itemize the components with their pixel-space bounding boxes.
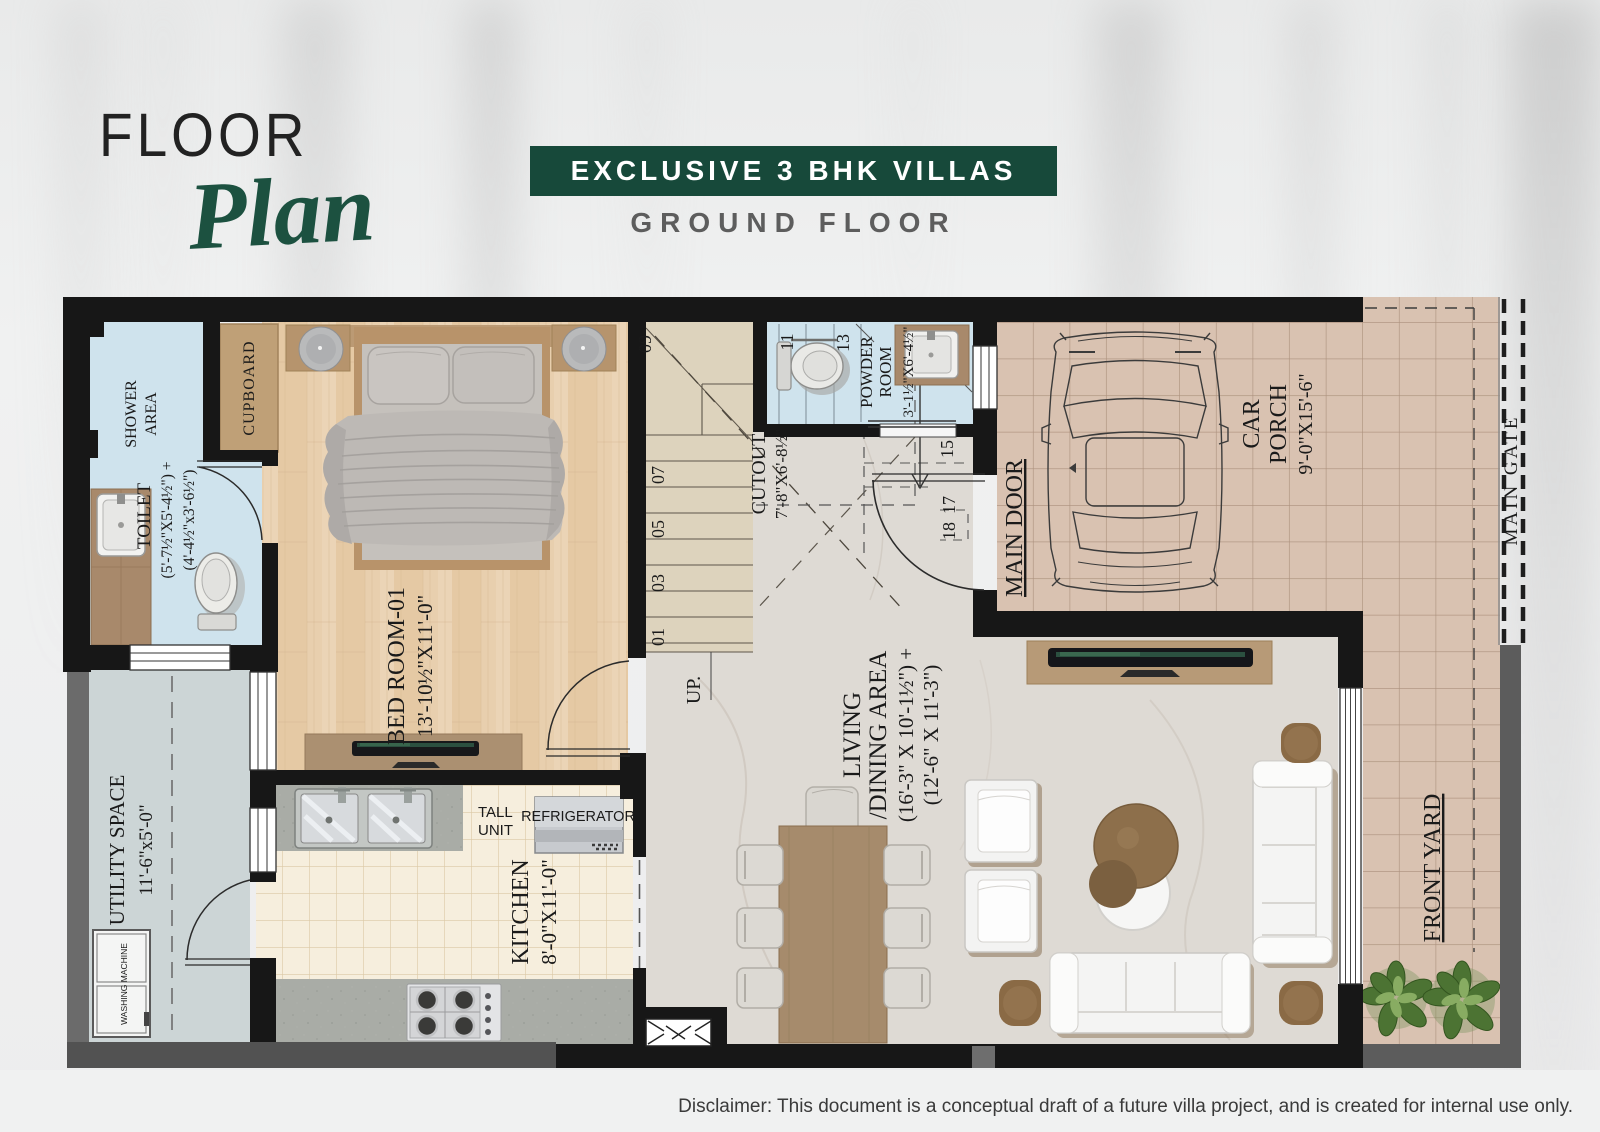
svg-text:UNIT: UNIT [478, 822, 513, 839]
svg-text:UP.: UP. [683, 676, 705, 704]
svg-text:7'-8"X6'-8½": 7'-8"X6'-8½" [772, 429, 791, 519]
svg-text:REFRIGERATOR: REFRIGERATOR [521, 809, 635, 825]
svg-text:/DINING AREA: /DINING AREA [865, 651, 892, 820]
svg-text:03: 03 [648, 574, 668, 592]
svg-text:13: 13 [833, 334, 853, 352]
svg-text:CUTOUT: CUTOUT [748, 434, 770, 515]
svg-text:FRONT YARD: FRONT YARD [1420, 794, 1446, 943]
svg-text:18: 18 [939, 522, 959, 540]
svg-text:09: 09 [635, 335, 655, 353]
svg-text:MAIN DOOR: MAIN DOOR [1002, 459, 1028, 597]
svg-text:TALL: TALL [478, 804, 513, 821]
svg-text:(12'-6" X 11'-3"): (12'-6" X 11'-3") [919, 665, 943, 806]
svg-text:TOILET: TOILET [134, 483, 155, 550]
svg-text:(16'-3" X 10'-1½") +: (16'-3" X 10'-1½") + [894, 648, 918, 822]
svg-text:17: 17 [939, 496, 959, 514]
svg-text:KITCHEN: KITCHEN [508, 859, 534, 964]
svg-text:13'-10½"X11'-0": 13'-10½"X11'-0" [413, 595, 437, 737]
svg-text:(5'-7½"X5'-4½") +: (5'-7½"X5'-4½") + [159, 462, 176, 579]
svg-text:01: 01 [648, 628, 668, 646]
svg-text:07: 07 [648, 466, 668, 484]
svg-text:MAIN GATE: MAIN GATE [1501, 415, 1522, 546]
svg-text:8'-0"X11'-0": 8'-0"X11'-0" [537, 859, 561, 965]
svg-text:15: 15 [937, 440, 957, 458]
svg-text:AREA: AREA [143, 392, 160, 436]
svg-text:POWDER: POWDER [857, 335, 876, 407]
svg-text:BED ROOM-01: BED ROOM-01 [384, 587, 410, 745]
svg-text:ROOM: ROOM [876, 346, 895, 397]
svg-text:WASHING MACHINE: WASHING MACHINE [119, 943, 129, 1025]
svg-text:PORCH: PORCH [1266, 384, 1292, 464]
svg-text:9'-0"X15'-6": 9'-0"X15'-6" [1295, 373, 1317, 474]
svg-text:05: 05 [648, 520, 668, 538]
svg-text:(4'-4½"x3'-6½"): (4'-4½"x3'-6½") [181, 470, 198, 571]
svg-text:CAR: CAR [1239, 399, 1265, 448]
svg-text:LIVING: LIVING [839, 692, 866, 778]
svg-text:CUPBOARD: CUPBOARD [241, 340, 258, 435]
svg-text:SHOWER: SHOWER [123, 380, 140, 448]
svg-text:11: 11 [777, 333, 797, 350]
svg-text:11'-6"x5'-0": 11'-6"x5'-0" [136, 804, 157, 895]
svg-text:3'-1½"X6'-4½": 3'-1½"X6'-4½" [901, 327, 917, 418]
svg-text:UTILITY SPACE: UTILITY SPACE [105, 775, 129, 926]
